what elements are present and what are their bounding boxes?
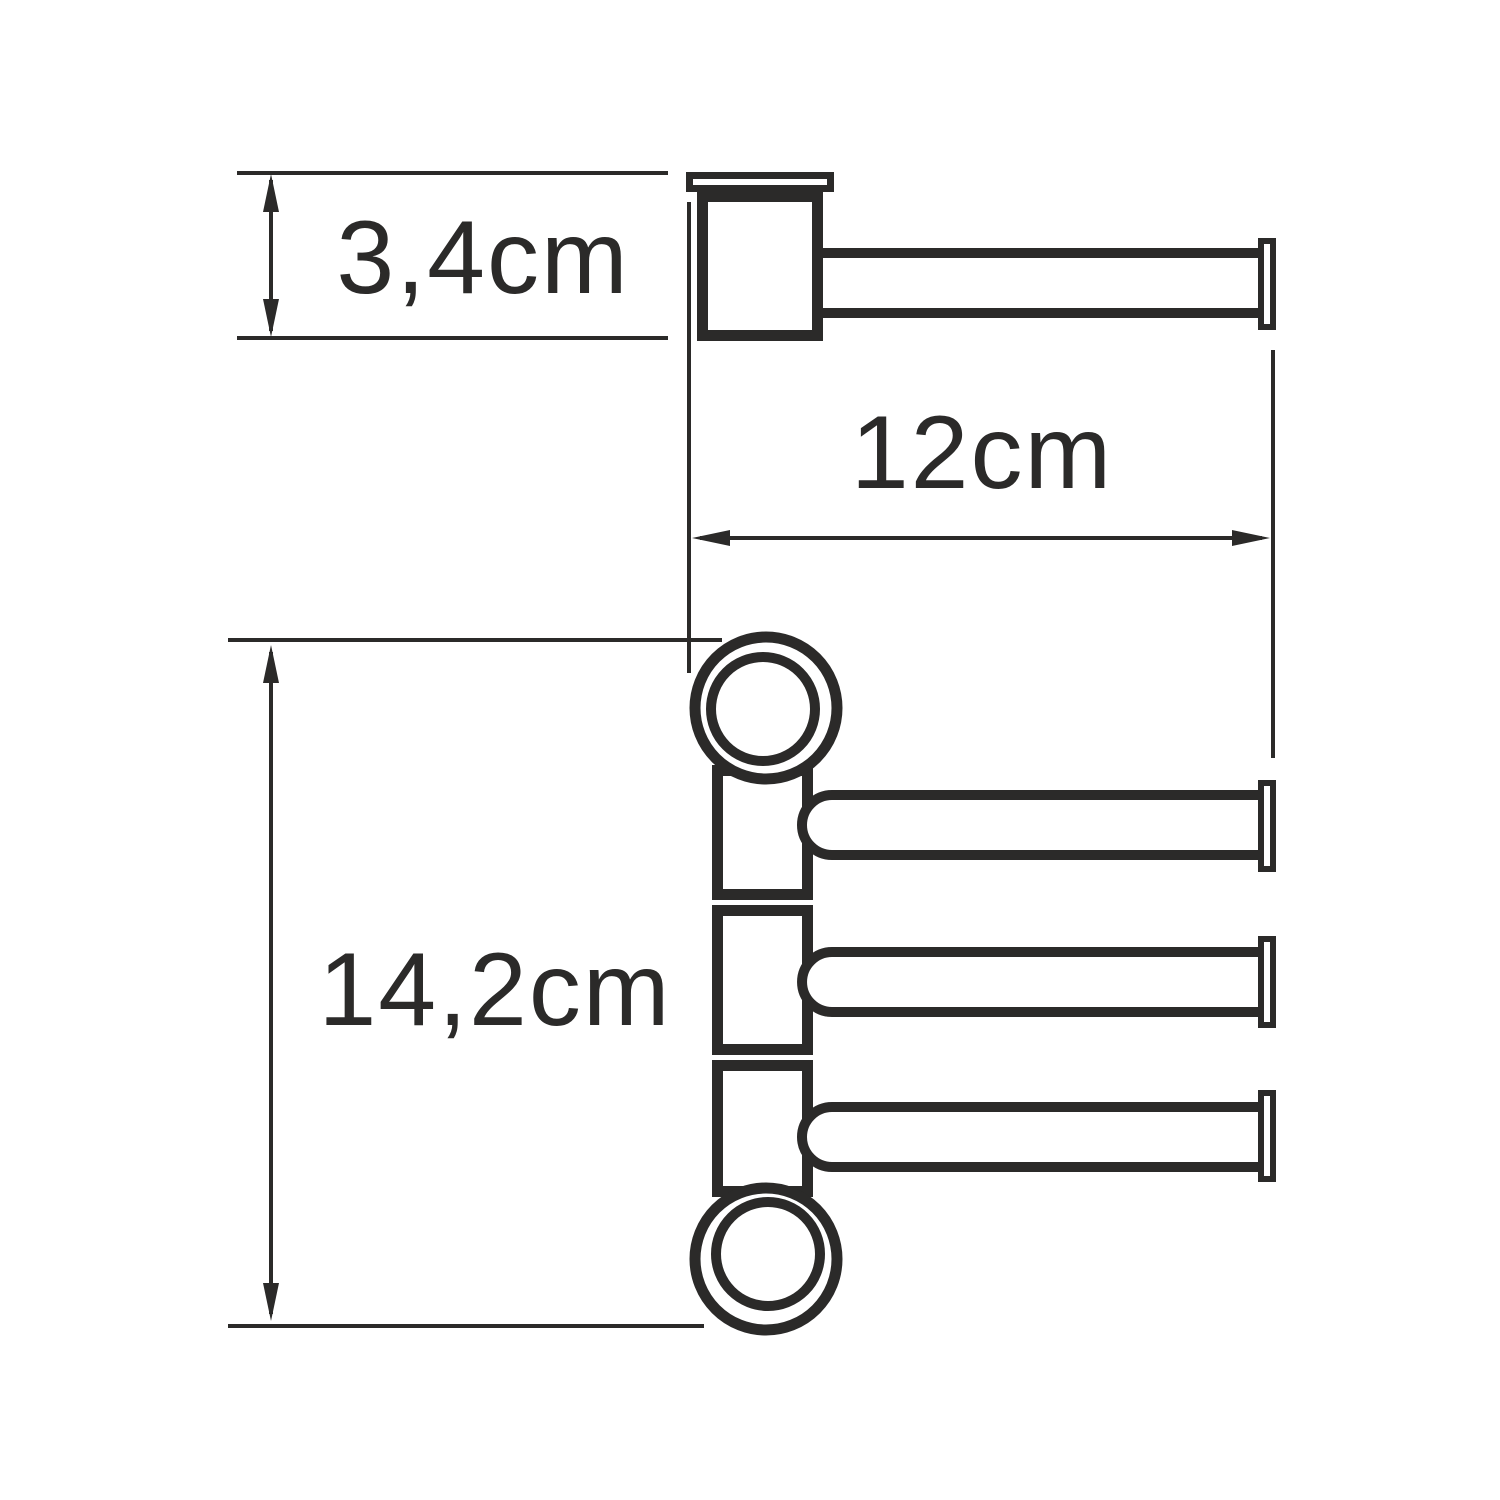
column-segment-2 xyxy=(718,911,808,1050)
arrow-right-icon xyxy=(1232,530,1270,546)
front-view xyxy=(695,637,1273,1330)
dimension-label-bar-length: 12cm xyxy=(851,395,1113,511)
dimension-label-mount-height: 3,4cm xyxy=(336,200,629,316)
bar-1-end-cap xyxy=(1261,783,1273,869)
swivel-bar-2 xyxy=(802,952,1258,1012)
arrow-left-icon xyxy=(692,530,730,546)
wall-plate-flange xyxy=(690,176,831,189)
arrow-down-icon xyxy=(263,299,279,337)
arrow-up-icon xyxy=(263,645,279,683)
arrow-down-icon xyxy=(263,1283,279,1321)
wall-plate-body xyxy=(703,197,818,336)
column-segment-1 xyxy=(718,771,808,895)
swivel-bar-1 xyxy=(802,795,1258,855)
top-view xyxy=(690,176,1274,336)
dimension-mount-height: 3,4cm xyxy=(237,173,668,338)
towel-holder-dimension-drawing: 3,4cm 12cm 14,2cm xyxy=(0,0,1500,1500)
dimension-column-height: 14,2cm xyxy=(228,640,722,1326)
arrow-up-icon xyxy=(263,174,279,212)
top-view-bar-end-cap xyxy=(1261,241,1273,327)
swivel-bar-3 xyxy=(802,1107,1258,1167)
dimension-drawing-canvas: 3,4cm 12cm 14,2cm xyxy=(0,0,1500,1500)
bar-2-end-cap xyxy=(1261,939,1273,1025)
bar-3-end-cap xyxy=(1261,1093,1273,1179)
dimension-label-column-height: 14,2cm xyxy=(318,932,671,1048)
column-segment-3 xyxy=(718,1066,808,1192)
